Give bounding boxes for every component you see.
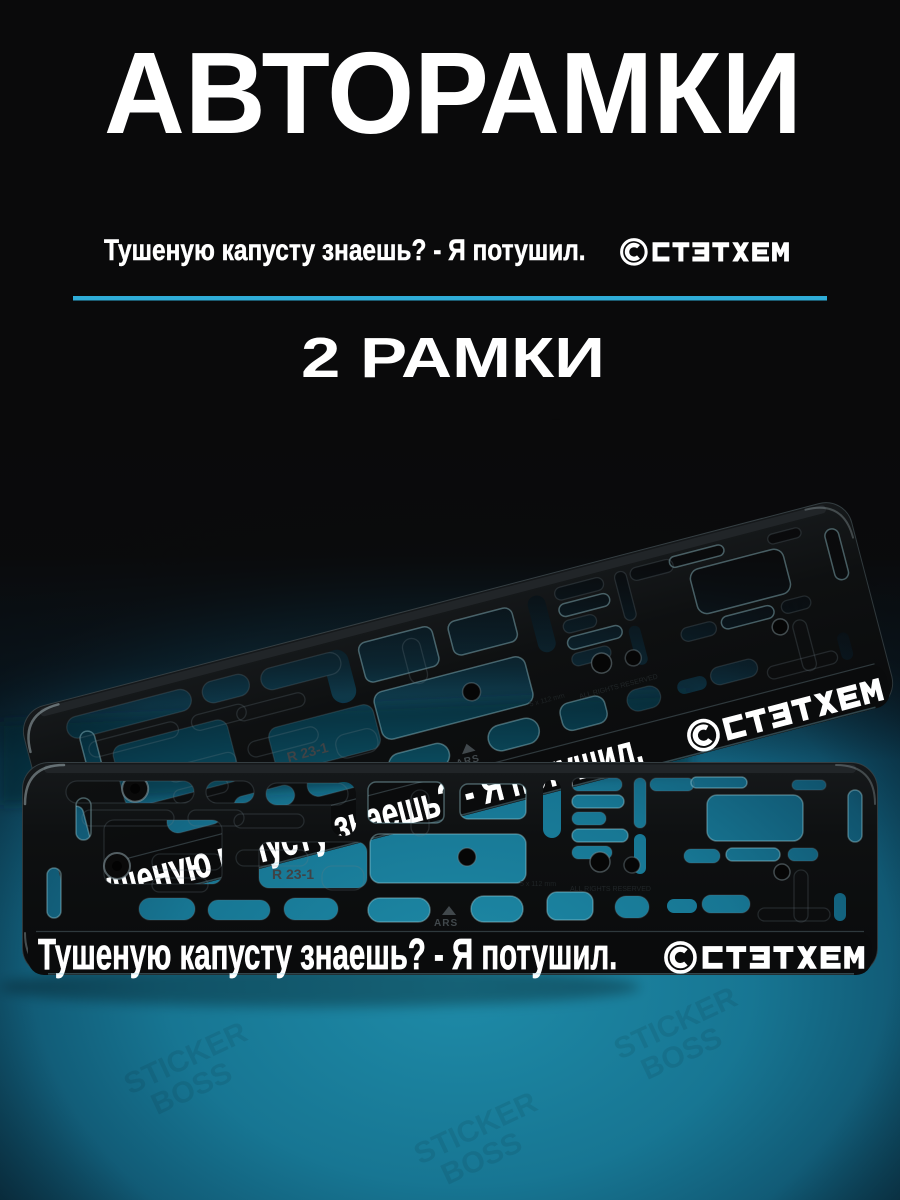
svg-text:АВТОРАМКИ: АВТОРАМКИ	[104, 28, 802, 158]
svg-text:Тушеную капусту знаешь? - Я по: Тушеную капусту знаешь? - Я потушил.	[104, 233, 586, 267]
svg-text:2 РАМКИ: 2 РАМКИ	[301, 326, 605, 390]
